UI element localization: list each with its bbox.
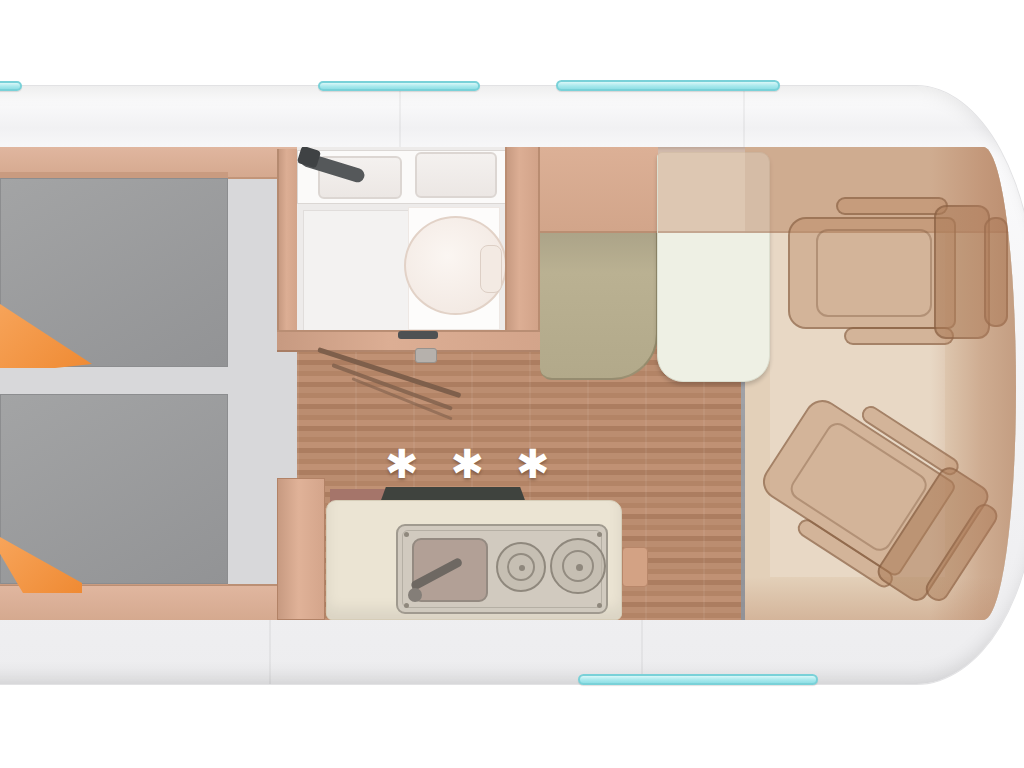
window-accent-top-right <box>556 80 780 91</box>
kitchen-faucet-base <box>408 588 422 602</box>
driver-swivel-seat <box>778 197 1010 347</box>
bathroom <box>297 147 540 352</box>
window-accent-bottom <box>578 674 818 685</box>
body-panel-seam <box>269 620 271 684</box>
seat-armrest <box>836 197 948 215</box>
bathroom-right-wall <box>505 147 540 352</box>
kitchen-tall-cabinet <box>277 478 325 620</box>
bathroom-counter-basin <box>415 152 497 198</box>
overhead-cabinet <box>540 147 658 233</box>
window-accent-top-mid <box>318 81 480 91</box>
door-hinge <box>415 348 437 363</box>
unit-screw <box>404 532 409 537</box>
bedroom-floor <box>0 147 297 620</box>
floor-asterisk-marks: ✱ ✱ ✱ <box>385 441 558 487</box>
dinette-table <box>657 152 770 382</box>
burner-center <box>576 564 583 571</box>
seat-cushion-seam <box>816 229 932 317</box>
window-accent-top-left <box>0 81 22 91</box>
bed-single-bottom <box>0 394 228 584</box>
seat-backrest <box>934 205 990 339</box>
bathroom-left-wall <box>277 149 298 349</box>
interior-area: ✱ ✱ ✱ <box>0 147 1016 620</box>
bathroom-door-handle <box>398 331 438 339</box>
stove-burner-large <box>550 538 606 594</box>
unit-screw <box>597 603 602 608</box>
body-panel-seam <box>743 88 745 148</box>
burner-center <box>519 565 525 571</box>
body-panel-seam <box>399 88 401 148</box>
stove-burner-small <box>496 542 546 592</box>
kitchen-step <box>622 547 648 587</box>
seat-headrest <box>984 217 1008 327</box>
kitchen-sink-stove-unit <box>396 524 608 614</box>
unit-screw <box>597 532 602 537</box>
unit-screw <box>404 603 409 608</box>
campervan-floorplan: ✱ ✱ ✱ <box>0 0 1024 768</box>
toilet-flush-panel <box>480 245 502 293</box>
dinette-bench-seat <box>540 228 658 380</box>
